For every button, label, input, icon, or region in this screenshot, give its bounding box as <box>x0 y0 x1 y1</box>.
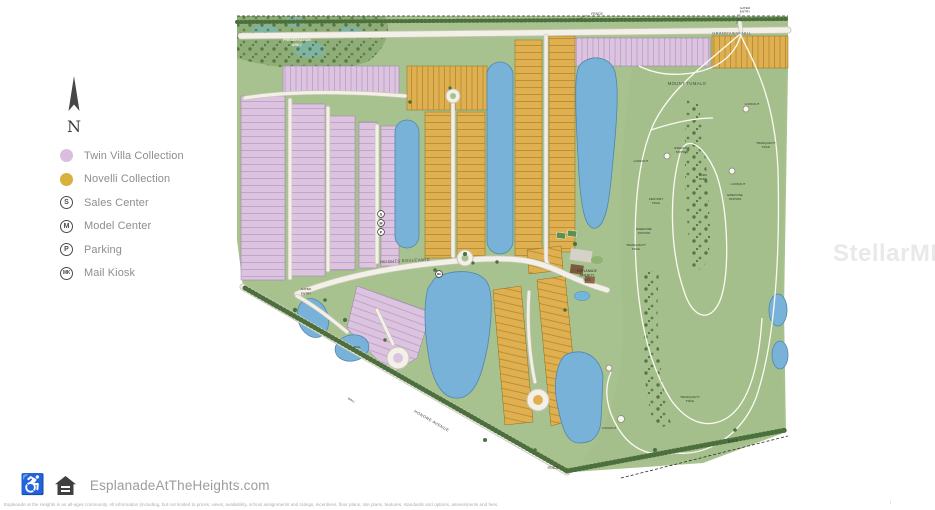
street-label-mount-tumalo: MOUNT TUMALO <box>668 81 707 86</box>
tranquility-trail-label: TRAIL <box>686 399 695 403</box>
amenity-site-label: ESPLANADE <box>577 269 598 273</box>
lot-block <box>359 122 377 268</box>
site-plan-map: S M P MK FENCE GATED ENTRY GRANDVIEW HIL… <box>235 10 790 480</box>
lot-block <box>283 66 399 94</box>
parking-icon: P <box>60 243 73 256</box>
stellar-mls-watermark: StellarMLS <box>833 240 935 268</box>
legend-item-novelli: Novelli Collection <box>60 173 184 186</box>
compass-north-label: N <box>67 117 81 136</box>
tranquility-trail-label: TRAIL <box>762 145 771 149</box>
wetland-label: PRESERVATION <box>283 38 311 42</box>
twin-villa-swatch-icon <box>60 149 73 162</box>
tranquility-trail-label: TRAIL <box>632 247 641 251</box>
sport-court <box>567 230 577 237</box>
lot-block <box>515 40 542 262</box>
legend-item-model-center: M Model Center <box>60 220 184 233</box>
compass-needle <box>69 76 80 111</box>
amenity-site-label: AMENITY <box>580 274 595 278</box>
lot-block <box>407 66 487 110</box>
lot-block <box>457 112 485 258</box>
legend-item-parking: P Parking <box>60 243 184 256</box>
exercise-station-label: STATION <box>729 197 742 201</box>
lot-block <box>329 116 355 270</box>
lot-block <box>241 96 285 280</box>
legend-label: Model Center <box>84 220 151 232</box>
lookout-label: LOOKOUT <box>634 159 649 163</box>
legend-item-twin-villa: Twin Villa Collection <box>60 149 184 162</box>
park-label: PARK <box>699 177 707 181</box>
fence-label: FENCE <box>548 466 559 470</box>
model-center-marker: M <box>380 221 383 225</box>
legend-label: Parking <box>84 244 122 256</box>
lookout-label: LOOKOUT <box>745 102 760 106</box>
sales-center-icon: S <box>60 196 73 209</box>
compass-icon: N <box>60 76 88 138</box>
mail-kiosk-marker: MK <box>437 272 441 276</box>
fence-label: FENCE <box>591 12 603 16</box>
wetland-preservation-area <box>237 16 388 69</box>
equal-housing-icon <box>54 475 77 496</box>
website-text: EsplanadeAtTheHeights.com <box>90 478 270 493</box>
model-center-icon: M <box>60 220 73 233</box>
wall-label: WALL <box>353 345 361 349</box>
legend-label: Sales Center <box>84 197 149 209</box>
listing-photo-page: { "colors": { "twin_villa": "#d9bedd", "… <box>0 0 935 510</box>
gated-entry-label: GATED <box>301 287 312 291</box>
amenity-site-label: SITE <box>583 278 591 282</box>
disclaimer-text: Esplanade at the Heights is an all-ages … <box>4 502 932 507</box>
legend-label: Twin Villa Collection <box>84 150 184 162</box>
novelli-swatch-icon <box>60 173 73 186</box>
legend-label: Mail Kiosk <box>84 267 135 279</box>
map-legend: Twin Villa Collection Novelli Collection… <box>60 149 184 280</box>
wall-label: WALL <box>347 396 356 404</box>
lake <box>395 120 419 248</box>
sport-court <box>556 232 566 239</box>
gated-entry-label: ENTRY <box>740 10 750 14</box>
exercise-station-label: STATION <box>638 231 651 235</box>
event-lawn <box>591 256 603 264</box>
gated-entry-label: ENTRY <box>301 292 311 296</box>
lot-block <box>549 36 575 252</box>
accessibility-icon: ♿ <box>20 474 45 496</box>
street-label-grandview-hill: GRANDVIEW HILL <box>712 31 752 36</box>
pond <box>772 341 788 369</box>
mail-kiosk-icon: MK <box>60 267 73 280</box>
lot-block <box>712 36 788 68</box>
pool <box>574 292 590 301</box>
wetland-label: WETLAND <box>288 33 306 37</box>
legend-item-sales-center: S Sales Center <box>60 196 184 209</box>
lot-block <box>291 104 325 276</box>
lookout-label: LOOKOUT <box>731 182 746 186</box>
legend-item-mail-kiosk: MK Mail Kiosk <box>60 267 184 280</box>
lot-block <box>425 112 451 258</box>
footer: ♿ EsplanadeAtTheHeights.com <box>20 474 270 496</box>
century-trail-label: TRAIL <box>652 201 661 205</box>
exercise-station-label: STATION <box>676 150 689 154</box>
street-label-honore-avenue: HONORE AVENUE <box>413 409 450 433</box>
legend-label: Novelli Collection <box>84 173 170 185</box>
lake <box>487 62 513 254</box>
pond <box>769 294 787 326</box>
wetland-label: AREA <box>292 43 303 47</box>
lookout-label: LOOKOUT <box>602 426 617 430</box>
